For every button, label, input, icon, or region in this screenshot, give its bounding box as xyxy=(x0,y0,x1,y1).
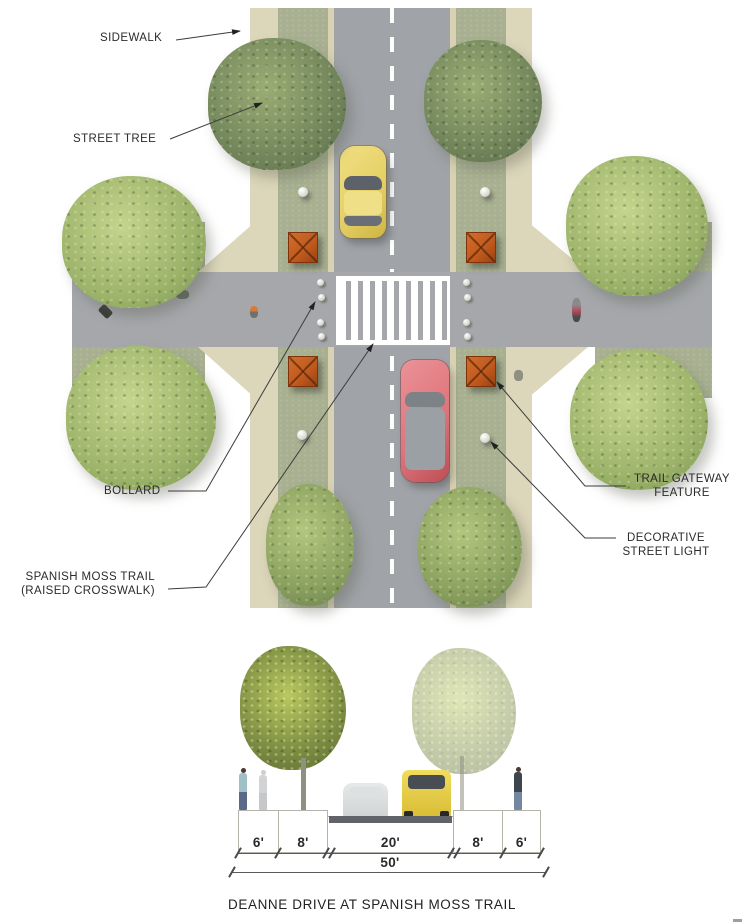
label-decorative-street-light: DECORATIVE STREET LIGHT xyxy=(596,531,736,559)
road-surface xyxy=(329,816,452,823)
car-rear-window xyxy=(349,787,382,798)
dimension-total: 50' xyxy=(373,855,407,870)
section-pedestrian xyxy=(258,770,268,811)
section-pedestrian xyxy=(513,767,523,811)
cross-section-view: 6' 8' 20' 8' 6' 50' DEANNE DRIVE AT SPAN… xyxy=(0,625,744,924)
section-pedestrian xyxy=(238,768,248,811)
section-tree-trunk xyxy=(460,756,464,812)
label-trail-gateway-feature: TRAIL GATEWAY FEATURE xyxy=(612,472,744,500)
label-bollard: BOLLARD xyxy=(104,484,161,498)
label-line: SPANISH MOSS TRAIL xyxy=(0,570,155,584)
total-dimension-line xyxy=(232,872,546,873)
label-line: TRAIL GATEWAY xyxy=(612,472,744,486)
label-line: STREET LIGHT xyxy=(596,545,736,559)
label-sidewalk: SIDEWALK xyxy=(100,31,162,45)
dimension-8-right: 8' xyxy=(454,835,502,850)
label-line: DECORATIVE xyxy=(596,531,736,545)
corner-mark xyxy=(733,919,742,922)
section-car-yellow xyxy=(402,770,451,817)
label-line: (RAISED CROSSWALK) xyxy=(0,584,155,598)
section-caption: DEANNE DRIVE AT SPANISH MOSS TRAIL xyxy=(0,897,744,912)
dimension-20-road: 20' xyxy=(328,835,453,850)
label-line: FEATURE xyxy=(612,486,744,500)
plan-view: SIDEWALK STREET TREE BOLLARD SPANISH MOS… xyxy=(0,0,744,625)
section-tree xyxy=(412,648,516,774)
dimension-8-left: 8' xyxy=(279,835,327,850)
dimension-6-left: 6' xyxy=(240,835,277,850)
label-street-tree: STREET TREE xyxy=(73,132,156,146)
label-spanish-moss-trail: SPANISH MOSS TRAIL (RAISED CROSSWALK) xyxy=(0,570,155,598)
section-tree xyxy=(240,646,346,770)
section-car-gray xyxy=(343,783,388,817)
dimension-6-right: 6' xyxy=(503,835,540,850)
dimension-line xyxy=(238,853,541,854)
car-rear-window xyxy=(408,775,445,789)
figure-canvas: SIDEWALK STREET TREE BOLLARD SPANISH MOS… xyxy=(0,0,744,924)
dim-tick xyxy=(542,866,550,877)
section-tree-trunk xyxy=(301,758,306,812)
